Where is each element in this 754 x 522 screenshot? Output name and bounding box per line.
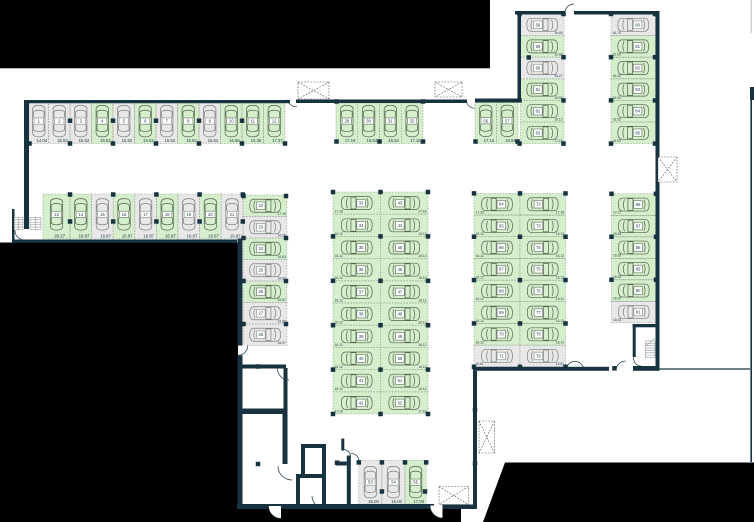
svg-text:16.20: 16.20 [613, 297, 621, 301]
svg-text:16.12: 16.12 [335, 365, 343, 369]
svg-text:16.12: 16.12 [556, 254, 564, 258]
svg-text:16.75: 16.75 [613, 31, 621, 35]
svg-text:16.53: 16.53 [613, 139, 621, 143]
svg-text:38: 38 [359, 312, 364, 317]
svg-text:16.54: 16.54 [505, 138, 516, 143]
svg-text:53: 53 [368, 480, 373, 485]
svg-text:16.12: 16.12 [556, 297, 564, 301]
svg-text:16.65: 16.65 [554, 31, 562, 35]
svg-text:90: 90 [636, 288, 641, 293]
svg-text:17.18: 17.18 [335, 210, 343, 214]
svg-text:59: 59 [536, 44, 541, 49]
svg-text:16.87: 16.87 [100, 233, 111, 238]
svg-text:16.16: 16.16 [613, 318, 621, 322]
svg-text:21: 21 [230, 212, 235, 217]
svg-text:50: 50 [398, 356, 403, 361]
svg-text:16.53: 16.53 [613, 117, 621, 121]
svg-text:16.87: 16.87 [208, 233, 219, 238]
svg-text:71: 71 [499, 353, 504, 358]
svg-text:16.53: 16.53 [613, 254, 621, 258]
svg-text:27: 27 [258, 311, 263, 316]
svg-text:17.16: 17.16 [345, 138, 356, 143]
svg-text:76: 76 [536, 288, 541, 293]
svg-text:20.27: 20.27 [54, 233, 65, 238]
svg-text:16.12: 16.12 [418, 298, 426, 302]
svg-text:16.12: 16.12 [476, 232, 484, 236]
svg-text:16.00: 16.00 [368, 499, 379, 504]
svg-text:16.12: 16.12 [335, 298, 343, 302]
svg-text:15.52: 15.52 [165, 138, 176, 143]
svg-text:16.12: 16.12 [556, 276, 564, 280]
svg-text:17.00: 17.00 [413, 499, 424, 504]
svg-text:16.12: 16.12 [554, 117, 562, 121]
svg-text:34: 34 [359, 223, 364, 228]
svg-text:56: 56 [483, 118, 488, 123]
svg-text:62: 62 [536, 109, 541, 114]
svg-text:16.12: 16.12 [556, 341, 564, 345]
svg-text:16.87: 16.87 [79, 233, 90, 238]
svg-text:14: 14 [78, 212, 83, 217]
svg-text:89: 89 [636, 267, 641, 272]
svg-text:16.12: 16.12 [418, 321, 426, 325]
svg-text:17.30: 17.30 [476, 210, 484, 214]
svg-text:36: 36 [359, 267, 364, 272]
svg-text:35: 35 [359, 245, 364, 250]
svg-text:69: 69 [499, 310, 504, 315]
svg-text:16.12: 16.12 [418, 276, 426, 280]
svg-text:87: 87 [636, 224, 641, 229]
svg-text:58: 58 [536, 22, 541, 27]
svg-text:16.12: 16.12 [476, 319, 484, 323]
svg-text:16.12: 16.12 [418, 343, 426, 347]
svg-text:11: 11 [251, 119, 256, 124]
svg-text:41: 41 [359, 378, 364, 383]
svg-text:16.54: 16.54 [388, 138, 399, 143]
svg-text:28: 28 [258, 332, 263, 337]
svg-text:16.86: 16.86 [229, 138, 240, 143]
svg-text:19: 19 [186, 212, 191, 217]
svg-text:10: 10 [229, 119, 234, 124]
svg-text:55: 55 [413, 480, 418, 485]
svg-text:74: 74 [536, 245, 541, 250]
svg-text:83: 83 [635, 87, 640, 92]
svg-text:67: 67 [499, 267, 504, 272]
svg-text:17.18: 17.18 [418, 210, 426, 214]
svg-text:47: 47 [398, 289, 403, 294]
svg-text:37: 37 [359, 289, 364, 294]
svg-text:16.87: 16.87 [230, 233, 241, 238]
svg-text:25: 25 [258, 268, 263, 273]
svg-text:16.12: 16.12 [556, 232, 564, 236]
svg-text:16.12: 16.12 [476, 276, 484, 280]
svg-text:16.12: 16.12 [335, 276, 343, 280]
svg-text:17.18: 17.18 [335, 409, 343, 413]
svg-text:16.12: 16.12 [418, 232, 426, 236]
svg-text:17.18: 17.18 [418, 409, 426, 413]
svg-text:79: 79 [536, 353, 541, 358]
svg-text:61: 61 [536, 87, 541, 92]
svg-text:46: 46 [398, 267, 403, 272]
svg-text:22: 22 [258, 203, 263, 208]
svg-text:16.87: 16.87 [187, 233, 198, 238]
svg-text:17.37: 17.37 [272, 138, 283, 143]
svg-text:16.27: 16.27 [554, 74, 562, 78]
svg-text:16.87: 16.87 [122, 233, 133, 238]
svg-text:16.12: 16.12 [335, 254, 343, 258]
svg-text:15.52: 15.52 [100, 138, 111, 143]
svg-text:16.12: 16.12 [476, 341, 484, 345]
svg-text:44: 44 [398, 223, 403, 228]
svg-text:64: 64 [499, 202, 504, 207]
svg-text:24: 24 [258, 246, 263, 251]
svg-text:39: 39 [359, 334, 364, 339]
svg-text:15.52: 15.52 [79, 138, 90, 143]
svg-text:23: 23 [258, 225, 263, 230]
svg-text:60: 60 [536, 65, 541, 70]
svg-text:43: 43 [398, 201, 403, 206]
svg-text:15.52: 15.52 [208, 138, 219, 143]
svg-text:80: 80 [635, 22, 640, 27]
svg-text:16.00: 16.00 [391, 499, 402, 504]
svg-text:48: 48 [398, 312, 403, 317]
svg-text:32: 32 [410, 119, 415, 124]
svg-text:12: 12 [272, 119, 277, 124]
svg-text:16.87: 16.87 [165, 233, 176, 238]
svg-text:33: 33 [359, 201, 364, 206]
svg-text:16.12: 16.12 [418, 254, 426, 258]
svg-text:86: 86 [636, 202, 641, 207]
svg-text:16.12: 16.12 [418, 387, 426, 391]
svg-text:84: 84 [635, 109, 640, 114]
svg-text:15.81: 15.81 [476, 362, 484, 366]
svg-text:16.53: 16.53 [613, 96, 621, 100]
svg-text:15.52: 15.52 [186, 138, 197, 143]
svg-text:49: 49 [398, 334, 403, 339]
svg-text:13: 13 [54, 212, 59, 217]
svg-text:52: 52 [398, 400, 403, 405]
svg-text:40: 40 [359, 356, 364, 361]
svg-text:16.12: 16.12 [476, 254, 484, 258]
svg-text:15.81: 15.81 [556, 362, 564, 366]
svg-text:16.12: 16.12 [476, 297, 484, 301]
svg-text:16.07: 16.07 [278, 341, 286, 345]
svg-text:16.87: 16.87 [278, 298, 286, 302]
svg-text:16.12: 16.12 [418, 365, 426, 369]
svg-text:26: 26 [258, 289, 263, 294]
svg-text:42: 42 [359, 400, 364, 405]
svg-text:51: 51 [398, 378, 403, 383]
svg-text:15.52: 15.52 [122, 138, 133, 143]
svg-text:73: 73 [536, 223, 541, 228]
svg-text:72: 72 [536, 202, 541, 207]
svg-text:29: 29 [345, 119, 350, 124]
svg-text:20: 20 [208, 212, 213, 217]
svg-text:15.52: 15.52 [57, 138, 68, 143]
svg-text:17.16: 17.16 [410, 138, 421, 143]
svg-text:16.12: 16.12 [335, 387, 343, 391]
svg-text:16: 16 [122, 212, 127, 217]
svg-text:82: 82 [635, 65, 640, 70]
svg-text:15.52: 15.52 [143, 138, 154, 143]
svg-text:85: 85 [635, 130, 640, 135]
svg-text:16.12: 16.12 [335, 343, 343, 347]
svg-text:16.87: 16.87 [143, 233, 154, 238]
svg-text:16.12: 16.12 [556, 319, 564, 323]
svg-text:15: 15 [100, 212, 105, 217]
svg-text:57: 57 [505, 118, 510, 123]
svg-text:81: 81 [635, 44, 640, 49]
svg-text:16.53: 16.53 [613, 53, 621, 57]
svg-text:75: 75 [536, 267, 541, 272]
svg-text:65: 65 [499, 223, 504, 228]
svg-text:17.16: 17.16 [484, 138, 495, 143]
svg-text:17: 17 [143, 212, 148, 217]
svg-text:30: 30 [366, 119, 371, 124]
svg-text:16.54: 16.54 [366, 138, 377, 143]
svg-text:16.35: 16.35 [251, 138, 262, 143]
svg-text:77: 77 [536, 310, 541, 315]
svg-text:16.53: 16.53 [613, 74, 621, 78]
svg-text:91: 91 [636, 310, 641, 315]
svg-text:16.12: 16.12 [335, 232, 343, 236]
svg-text:17.18: 17.18 [556, 210, 564, 214]
svg-text:17.27: 17.27 [613, 211, 621, 215]
svg-text:16.63: 16.63 [278, 255, 286, 259]
svg-text:45: 45 [398, 245, 403, 250]
svg-text:54: 54 [391, 480, 396, 485]
svg-text:70: 70 [499, 332, 504, 337]
svg-text:78: 78 [536, 332, 541, 337]
svg-text:16.53: 16.53 [613, 275, 621, 279]
svg-text:14.04: 14.04 [37, 138, 48, 143]
svg-text:16.12: 16.12 [335, 321, 343, 325]
svg-text:63: 63 [536, 130, 541, 135]
svg-text:16.53: 16.53 [613, 232, 621, 236]
svg-text:17.18: 17.18 [278, 212, 286, 216]
svg-text:88: 88 [636, 245, 641, 250]
svg-text:31: 31 [388, 119, 393, 124]
svg-text:68: 68 [499, 288, 504, 293]
svg-text:66: 66 [499, 245, 504, 250]
svg-text:18: 18 [165, 212, 170, 217]
